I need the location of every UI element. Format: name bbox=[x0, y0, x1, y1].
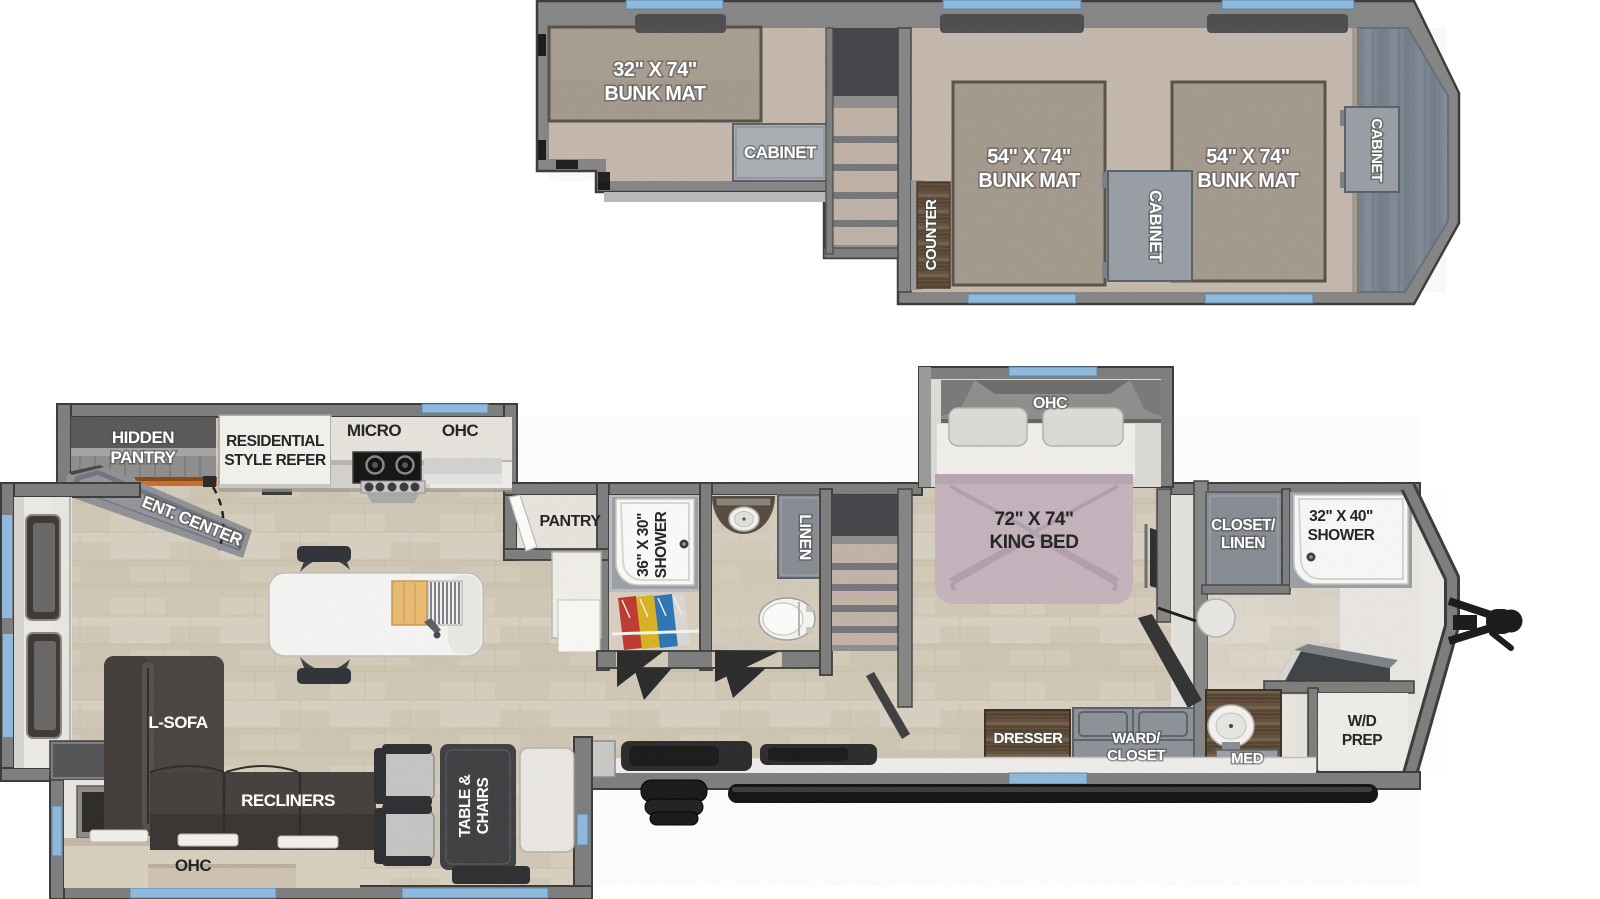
svg-text:CABINET: CABINET bbox=[744, 143, 817, 162]
svg-text:PANTRY: PANTRY bbox=[111, 448, 177, 467]
svg-text:MICRO: MICRO bbox=[347, 421, 401, 440]
svg-text:CLOSET/: CLOSET/ bbox=[1211, 517, 1276, 534]
svg-text:HIDDEN: HIDDEN bbox=[112, 428, 174, 447]
svg-text:LINEN: LINEN bbox=[796, 514, 813, 560]
svg-text:32" X 74": 32" X 74" bbox=[613, 59, 696, 81]
svg-text:BUNK MAT: BUNK MAT bbox=[978, 170, 1079, 192]
svg-text:RESIDENTIAL: RESIDENTIAL bbox=[226, 433, 324, 450]
svg-text:RECLINERS: RECLINERS bbox=[241, 791, 335, 810]
svg-text:W/D: W/D bbox=[1348, 713, 1377, 730]
svg-text:CABINET: CABINET bbox=[1368, 118, 1385, 182]
svg-text:MED: MED bbox=[1231, 750, 1264, 767]
svg-text:72" X 74": 72" X 74" bbox=[994, 509, 1073, 530]
svg-text:32" X 40": 32" X 40" bbox=[1309, 508, 1373, 525]
svg-text:OHC: OHC bbox=[175, 856, 212, 875]
svg-text:CABINET: CABINET bbox=[1146, 190, 1165, 263]
svg-text:OHC: OHC bbox=[442, 421, 479, 440]
svg-text:54" X 74": 54" X 74" bbox=[1206, 146, 1289, 168]
svg-text:WARD/: WARD/ bbox=[1112, 730, 1161, 747]
svg-text:COUNTER: COUNTER bbox=[923, 199, 940, 270]
svg-text:TABLE &: TABLE & bbox=[457, 774, 474, 837]
svg-text:PREP: PREP bbox=[1342, 732, 1382, 749]
svg-text:LINEN: LINEN bbox=[1221, 535, 1265, 552]
svg-text:CHAIRS: CHAIRS bbox=[475, 778, 492, 835]
svg-text:CLOSET: CLOSET bbox=[1107, 747, 1165, 764]
svg-text:BUNK MAT: BUNK MAT bbox=[604, 83, 705, 105]
svg-text:STYLE REFER: STYLE REFER bbox=[224, 452, 326, 469]
svg-text:KING BED: KING BED bbox=[990, 532, 1079, 553]
svg-text:SHOWER: SHOWER bbox=[1308, 527, 1375, 544]
svg-text:54" X 74": 54" X 74" bbox=[987, 146, 1070, 168]
svg-text:DRESSER: DRESSER bbox=[993, 730, 1063, 747]
svg-text:BUNK MAT: BUNK MAT bbox=[1197, 170, 1298, 192]
svg-text:PANTRY: PANTRY bbox=[540, 513, 602, 530]
svg-text:36" X 30": 36" X 30" bbox=[635, 513, 652, 577]
svg-text:OHC: OHC bbox=[1033, 395, 1068, 412]
svg-text:SHOWER: SHOWER bbox=[653, 511, 670, 578]
svg-text:L-SOFA: L-SOFA bbox=[148, 713, 208, 732]
